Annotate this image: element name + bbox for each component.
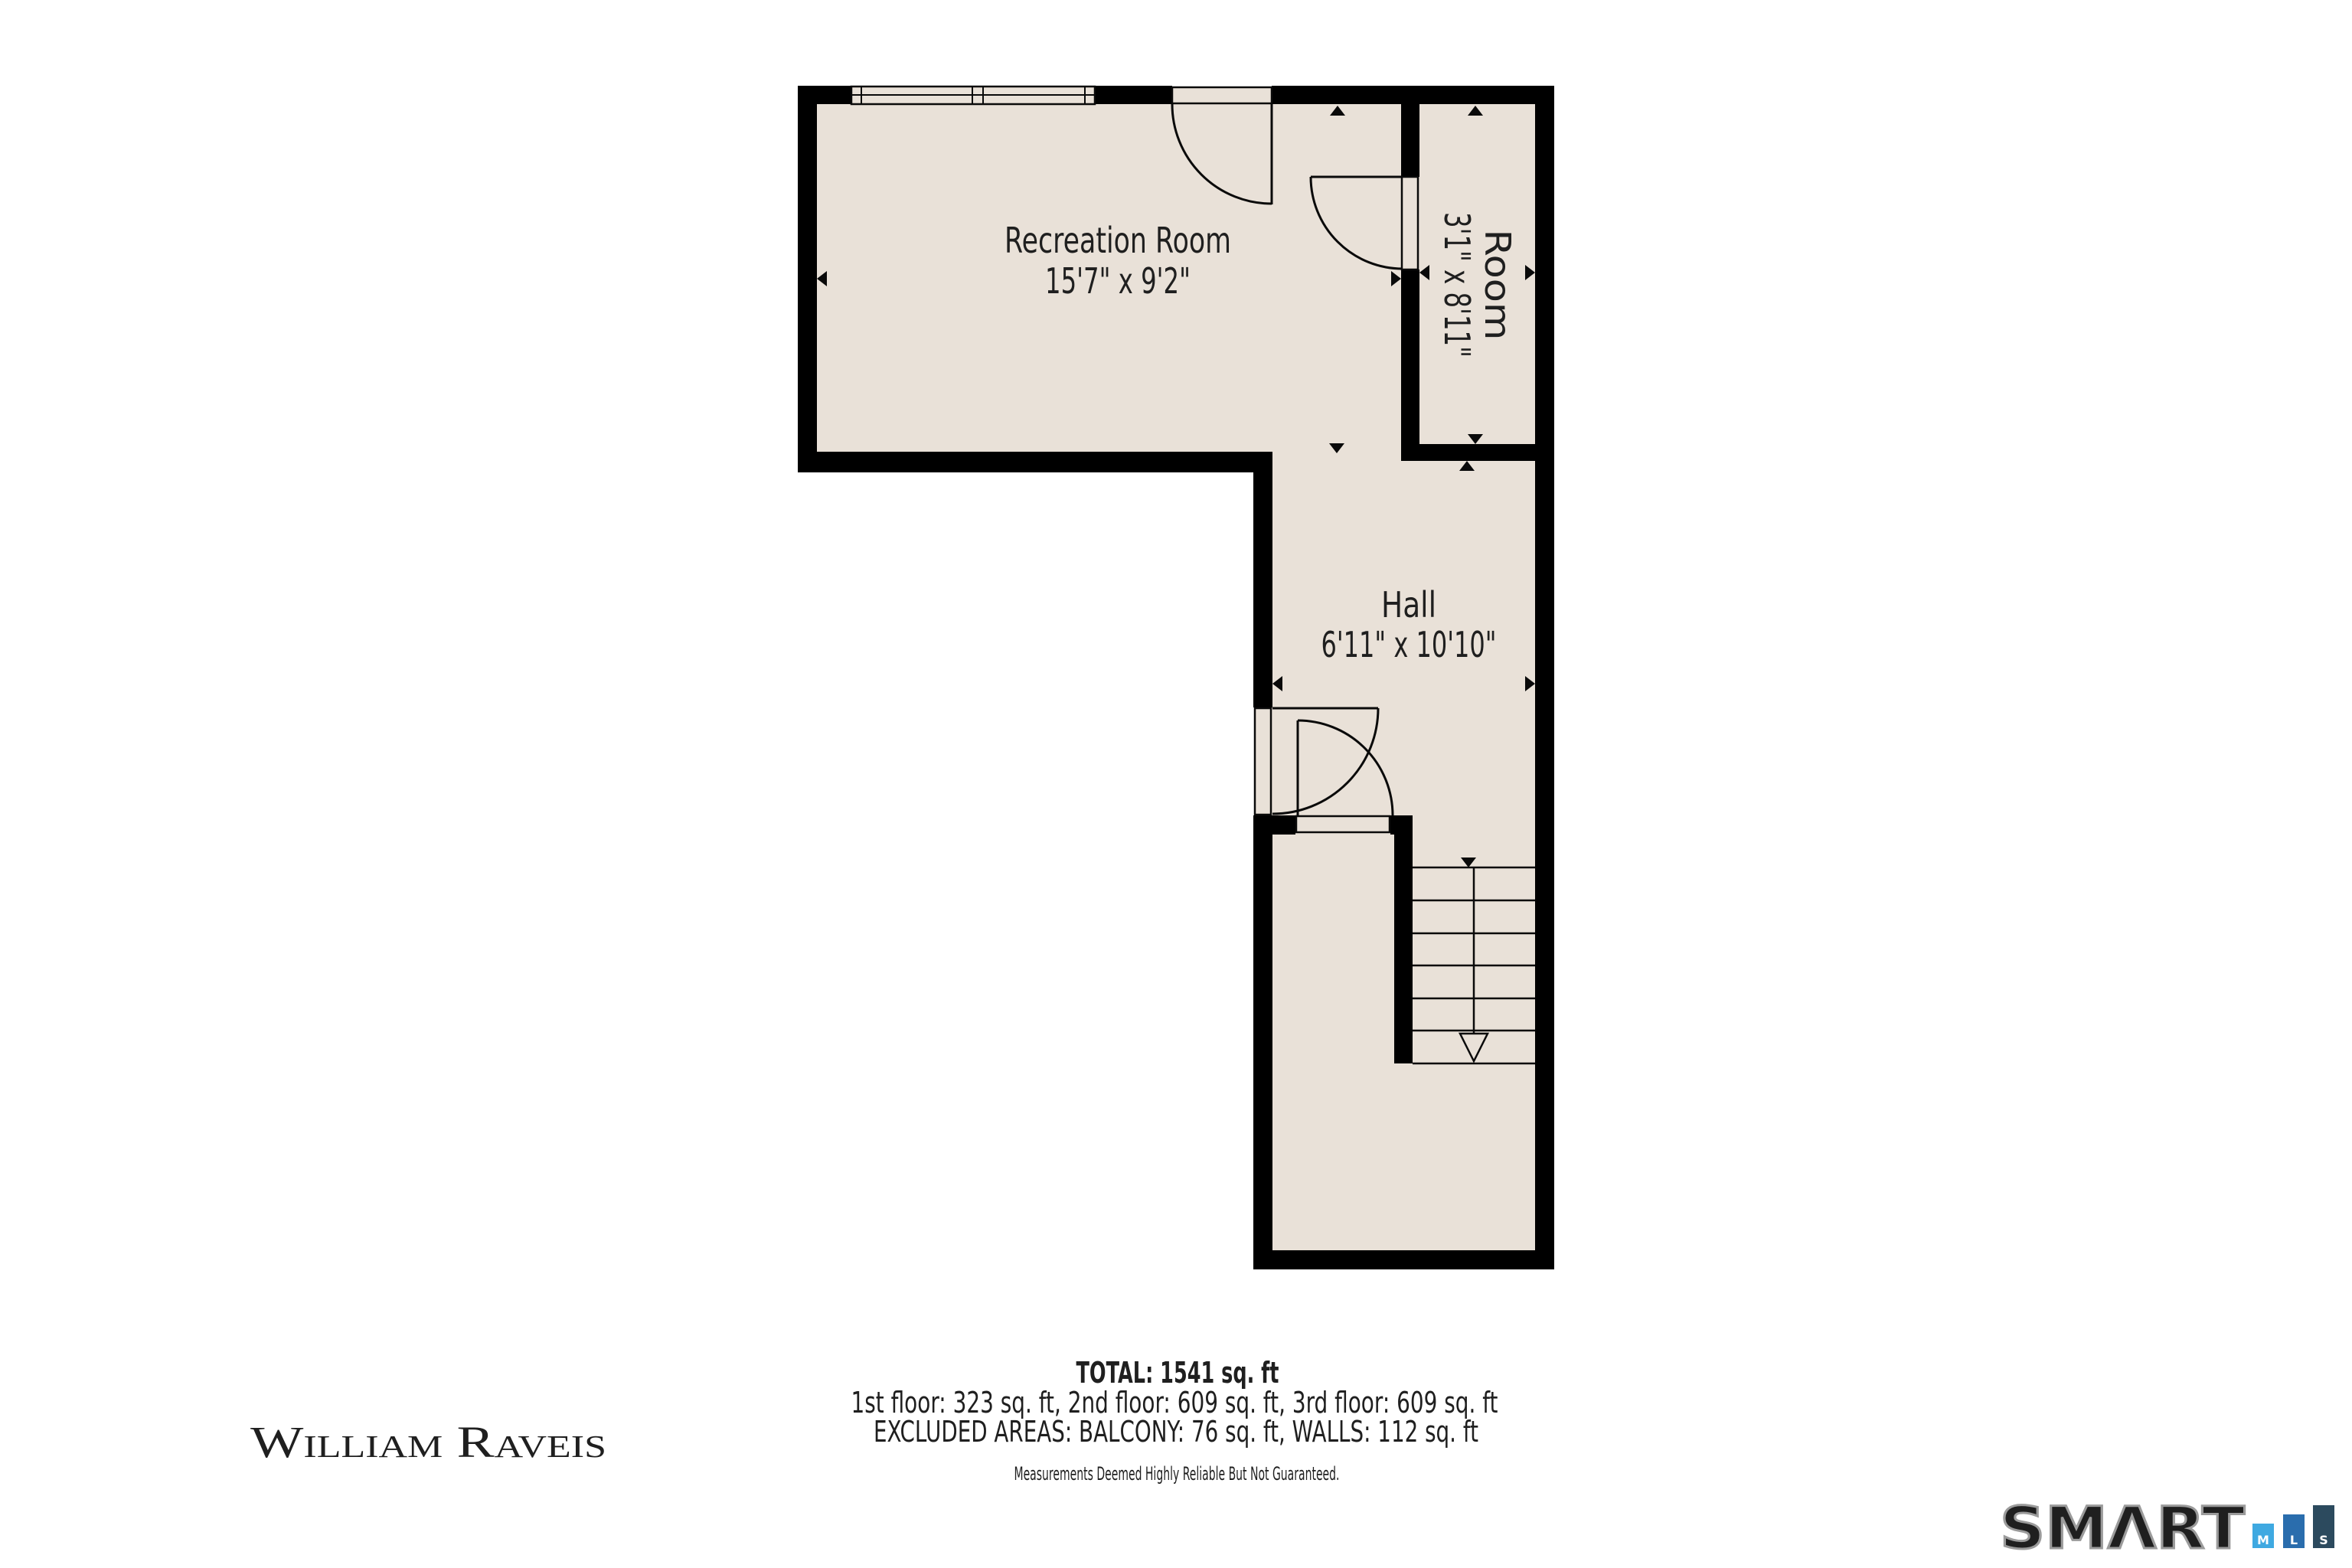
mls-bar-s-letter: S [2319, 1533, 2328, 1547]
wall-top-right [1272, 86, 1554, 104]
disclaimer-text: Measurements Deemed Highly Reliable But … [1014, 1463, 1340, 1485]
area-summary: TOTAL: 1541 sq. ft 1st floor: 323 sq. ft… [851, 1356, 1498, 1485]
room-label: Room [1477, 230, 1518, 341]
smart-wordmark: SMΛRT [2000, 1494, 2245, 1562]
wall-hall-left-upper [1253, 452, 1272, 707]
room-dimensions: 3'1" x 8'11" [1436, 212, 1478, 358]
wall-divider-lower [1401, 269, 1419, 444]
door-frame-room [1402, 177, 1418, 269]
door-frame-top [1172, 87, 1272, 103]
recreation-room-label: Recreation Room [1004, 220, 1231, 261]
hall-dimensions: 6'11" x 10'10" [1321, 624, 1497, 665]
floor-plan-drawing: Recreation Room 15'7" x 9'2" Room 3'1" x… [0, 0, 2352, 1568]
floor-plan-page: Recreation Room 15'7" x 9'2" Room 3'1" x… [0, 0, 2352, 1568]
wall-bottom [1253, 1250, 1554, 1269]
total-area-text: TOTAL: 1541 sq. ft [1076, 1356, 1279, 1390]
wall-hall-left-lower [1253, 815, 1272, 1269]
wall-room-bottom [1401, 444, 1554, 461]
mls-bar-l-letter: L [2290, 1533, 2298, 1547]
wall-hall-bottom-right [1390, 815, 1413, 835]
wall-right [1535, 86, 1554, 1269]
wall-left [798, 86, 817, 472]
wall-hall-bottom-left [1253, 815, 1295, 835]
wall-divider-upper [1401, 104, 1419, 177]
smart-mls-logo: SMΛRT M L S [2000, 1494, 2334, 1562]
window-double [851, 87, 1095, 104]
wall-stair-separator [1394, 835, 1413, 1063]
wall-recreation-bottom [798, 452, 1272, 472]
door-frame-hall-left [1255, 708, 1271, 815]
william-raveis-logo: William Raveis [250, 1417, 606, 1467]
door-frame-hall-bottom [1296, 816, 1390, 832]
hall-label: Hall [1381, 584, 1436, 626]
recreation-room-dimensions: 15'7" x 9'2" [1045, 260, 1191, 302]
room-label-rotated-group: Room 3'1" x 8'11" [1436, 212, 1518, 358]
excluded-areas-text: EXCLUDED AREAS: BALCONY: 76 sq. ft, WALL… [874, 1415, 1478, 1449]
wall-top-middle [1095, 86, 1172, 104]
mls-bar-m-letter: M [2257, 1533, 2269, 1547]
